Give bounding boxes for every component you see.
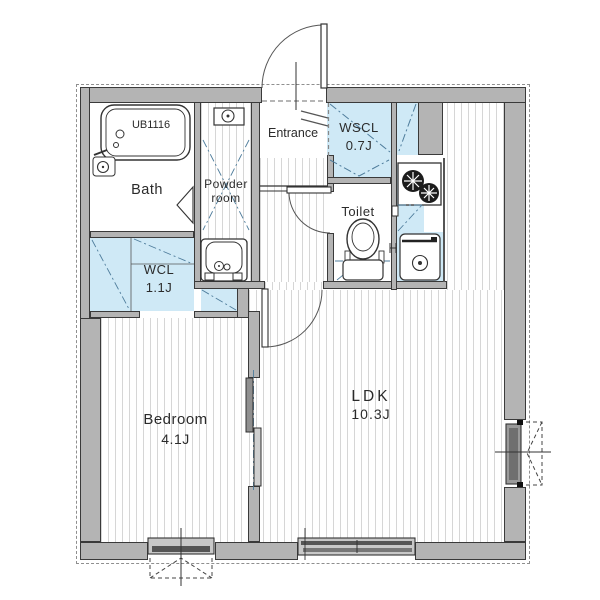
ldk-door — [262, 289, 322, 347]
room-label-wcl: WCL — [117, 263, 201, 278]
room-area-bedroom: 4.1J — [103, 431, 248, 447]
room-label-powder: Powder room — [198, 178, 254, 206]
room-label-bath: Bath — [104, 182, 190, 199]
powder-label-line2: room — [198, 192, 254, 206]
floor-plan: Bath UB1116 Powder room Entrance WSCL 0.… — [0, 0, 600, 600]
refrigerator-marker — [398, 205, 422, 231]
room-label-wscl: WSCL — [327, 121, 391, 136]
powder-label-line1: Powder — [198, 178, 254, 192]
room-area-ldk: 10.3J — [320, 406, 422, 422]
window-ldk-bottom — [298, 528, 415, 560]
kitchen-sink — [400, 234, 440, 280]
toilet-wall-accessories — [390, 206, 398, 253]
room-area-wscl: 0.7J — [327, 139, 391, 154]
room-label-entrance: Entrance — [258, 126, 328, 140]
washer-pan — [203, 108, 249, 230]
room-area-wcl: 1.1J — [117, 281, 201, 296]
entrance-door — [262, 24, 327, 110]
room-label-ldk: LDK — [320, 388, 422, 406]
room-label-bedroom: Bedroom — [103, 411, 248, 428]
toilet-fixture — [335, 219, 390, 280]
fixtures-overlay — [0, 0, 600, 600]
room-label-toilet: Toilet — [326, 205, 390, 220]
bedroom-sliding-door — [246, 370, 261, 492]
window-bedroom — [148, 528, 214, 586]
kitchen-stove — [398, 163, 441, 205]
entrance-step — [260, 111, 328, 191]
toilet-door — [287, 187, 331, 233]
washbasin — [201, 239, 247, 281]
window-ldk-right — [495, 420, 551, 487]
bathtub-model-label: UB1116 — [111, 119, 191, 132]
bathtub — [101, 105, 190, 160]
